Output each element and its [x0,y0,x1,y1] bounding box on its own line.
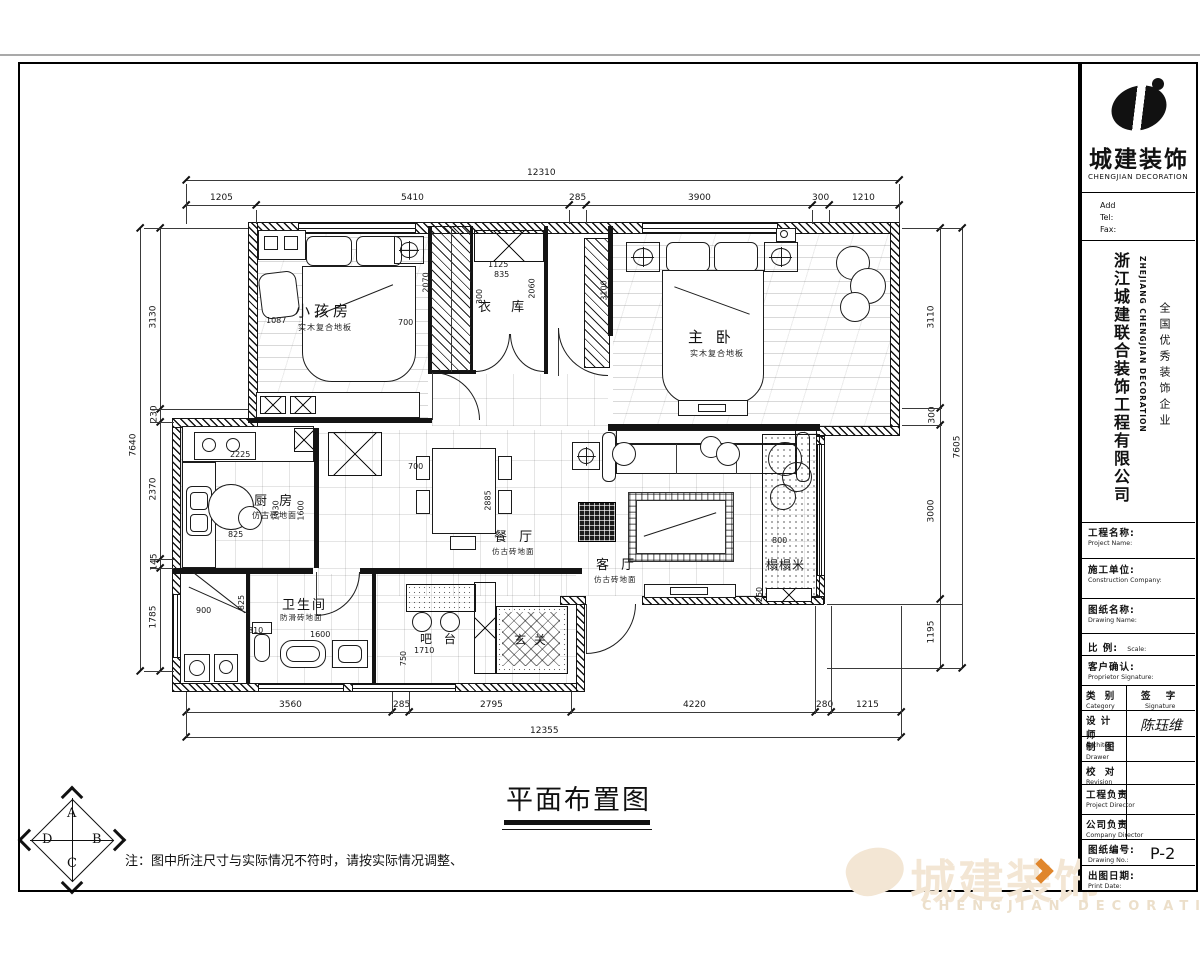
field-en: Scale: [1127,646,1146,653]
contact-fax: Fax: [1100,225,1116,234]
field-cn: 类 别 [1086,688,1126,702]
sign-row-revision: 校 对 Revision [1082,761,1195,784]
field-construction: 施工单位: Construction Company: [1082,558,1195,598]
field-en: Signature [1145,703,1195,710]
field-cn: 工程负责 [1086,787,1195,801]
watermark-en: CHENGJIAN DECORATION [922,899,1200,914]
field-en: Drawing Name: [1088,617,1195,624]
field-en: Company Director [1086,832,1195,839]
field-cn: 比 例: [1088,643,1118,654]
field-date: 出图日期: Print Date: [1082,865,1195,889]
sign-header-category: 类 别 Category [1082,686,1126,710]
field-drawing-no: 图纸编号: Drawing No.: P-2 [1082,839,1195,865]
field-cn: 图纸名称: [1088,602,1195,616]
field-cn: 施工单位: [1088,562,1195,576]
field-cn: 客户确认: [1088,659,1195,673]
field-en: Print Date: [1088,883,1195,890]
field-cn: 制 图 [1086,739,1195,753]
drawing-no-value: P-2 [1150,844,1175,863]
field-cn: 公司负责 [1086,817,1195,831]
watermark-blob-icon [840,840,909,902]
field-cn: 校 对 [1086,764,1195,778]
field-cn: 图纸编号: [1088,842,1195,856]
title-block: 城建装饰 CHENGJIAN DECORATION Add Tel: Fax: … [1080,62,1198,892]
field-en: Drawing No.: [1088,857,1195,864]
field-project: 工程名称: Project Name: [1082,522,1195,558]
field-scale: 比 例: Scale: [1082,633,1195,655]
field-client: 客户确认: Proprietor Signature: [1082,655,1195,685]
contact-add: Add [1100,201,1116,210]
field-cn: 工程名称: [1088,525,1195,539]
field-en: Proprietor Signature: [1088,674,1195,681]
company-name-en: ZHEJIANG CHENGJIAN DECORATION [1138,256,1147,433]
drawing-frame [18,62,1080,892]
sign-header-signature: 签 字 Signature [1127,686,1195,710]
field-drawing-name: 图纸名称: Drawing Name: [1082,598,1195,633]
logo-en: CHENGJIAN DECORATION [1088,172,1188,181]
sign-table: 类 别 Category 签 字 Signature 设 计 师 Archite… [1082,685,1195,839]
chengjian-logo-icon [1110,78,1170,136]
sign-row-architect: 设 计 师 Architect 陈珏维 [1082,710,1195,736]
field-cn: 签 字 [1141,688,1195,702]
sign-row-drawer: 制 图 Drawer [1082,736,1195,761]
field-en: Construction Company: [1088,577,1195,584]
field-en: Project Name: [1088,540,1195,547]
company-name-cn: 浙江城建联合装饰工程有限公司 [1108,252,1132,504]
field-en: Category [1086,703,1126,710]
logo-cn: 城建装饰 [1089,140,1189,174]
top-rule [0,54,1200,56]
field-en: Project Director [1086,802,1195,809]
sign-row-comp-director: 公司负责 Company Director [1082,814,1195,840]
field-cn: 出图日期: [1088,868,1195,882]
field-en: Drawer [1086,754,1195,761]
architect-signature: 陈珏维 [1140,715,1182,735]
company-honor: 全国优秀装饰企业 [1156,302,1172,430]
contact-tel: Tel: [1100,213,1113,222]
sign-row-proj-director: 工程负责 Project Director [1082,784,1195,814]
